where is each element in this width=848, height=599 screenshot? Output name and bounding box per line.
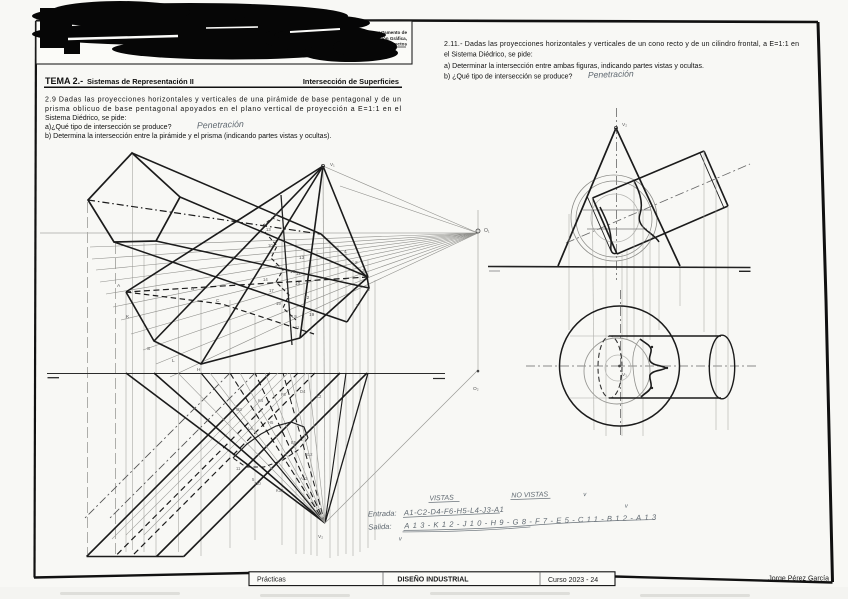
svg-text:VISTAS: VISTAS — [429, 495, 454, 503]
svg-text:v: v — [625, 504, 629, 510]
svg-text:DISEÑO INDUSTRIAL: DISEÑO INDUSTRIAL — [397, 575, 469, 584]
svg-text:Jorge Pérez García: Jorge Pérez García — [768, 576, 829, 583]
svg-text:A1-C2-D4-F6-H5-L4-J3-A1: A1-C2-D4-F6-H5-L4-J3-A1 — [403, 505, 504, 518]
svg-text:Curso 2023 - 24: Curso 2023 - 24 — [548, 577, 598, 584]
svg-text:Entrada:: Entrada: — [368, 509, 397, 519]
svg-text:Salida:: Salida: — [368, 522, 392, 532]
svg-text:v: v — [583, 492, 587, 498]
svg-text:v: v — [399, 536, 403, 542]
svg-text:Prácticas: Prácticas — [257, 577, 286, 584]
